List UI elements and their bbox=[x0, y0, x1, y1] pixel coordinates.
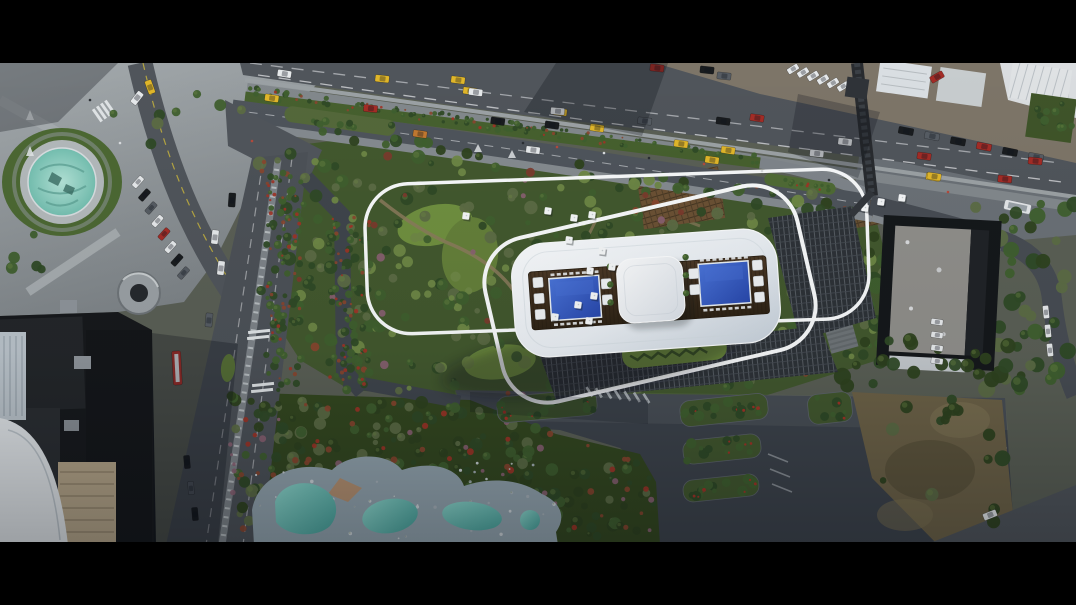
aerial-photo bbox=[0, 0, 1076, 605]
letterbox-bottom bbox=[0, 542, 1076, 605]
scene-svg bbox=[0, 0, 1076, 605]
vignette bbox=[0, 63, 1076, 542]
aerial-photo-stage bbox=[0, 0, 1076, 605]
letterbox-top bbox=[0, 0, 1076, 63]
